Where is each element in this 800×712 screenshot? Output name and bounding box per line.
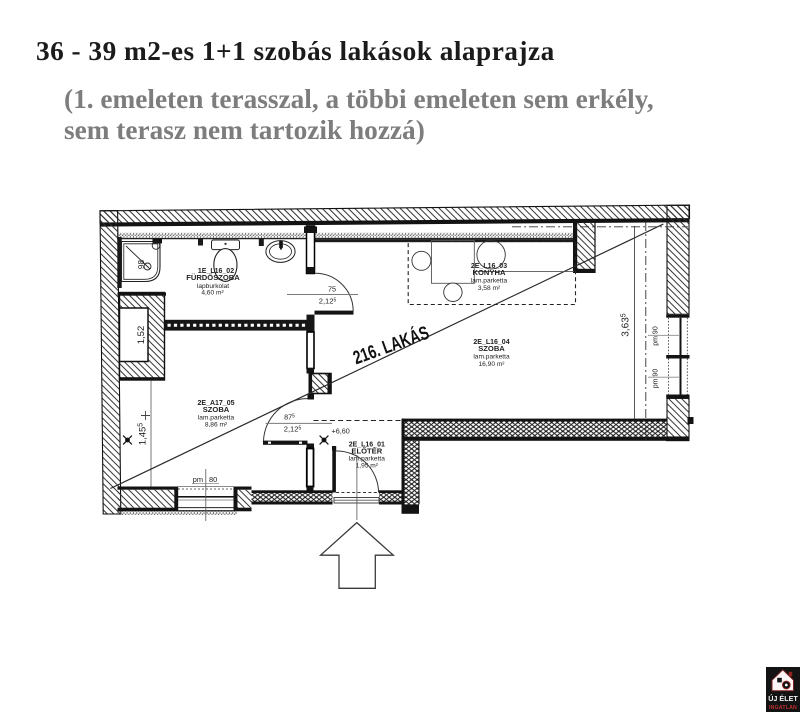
svg-text:+6,60: +6,60 — [332, 427, 350, 436]
svg-text:lam.parketta: lam.parketta — [349, 456, 386, 463]
svg-text:SZOBA: SZOBA — [478, 344, 505, 353]
svg-text:875: 875 — [284, 413, 295, 422]
svg-text:pm 90: pm 90 — [653, 326, 660, 346]
svg-text:pm: pm — [193, 475, 203, 484]
svg-text:SZOBA: SZOBA — [203, 405, 230, 414]
svg-text:8,86 m²: 8,86 m² — [205, 422, 228, 429]
svg-text:pm 90: pm 90 — [653, 369, 660, 389]
svg-text:80: 80 — [209, 475, 217, 484]
svg-text:FÜRDŐSZOBA: FÜRDŐSZOBA — [186, 273, 240, 282]
svg-text:3,635: 3,635 — [621, 313, 632, 336]
svg-text:lam.parketta: lam.parketta — [471, 278, 508, 285]
svg-text:75: 75 — [328, 285, 336, 294]
svg-text:lam.parketta: lam.parketta — [473, 354, 510, 361]
svg-text:2,125: 2,125 — [284, 425, 302, 434]
svg-text:INGATLAN: INGATLAN — [769, 705, 797, 711]
svg-text:216. LAKÁS: 216. LAKÁS — [350, 322, 432, 369]
svg-text:2,125: 2,125 — [319, 297, 337, 306]
svg-text:98: 98 — [137, 260, 146, 270]
svg-text:16,90 m²: 16,90 m² — [478, 361, 505, 368]
svg-text:4,60 m²: 4,60 m² — [201, 289, 224, 296]
svg-text:KONYHA: KONYHA — [473, 268, 506, 277]
svg-text:1,455: 1,455 — [138, 423, 149, 446]
svg-text:ELŐTÉR: ELŐTÉR — [351, 447, 382, 456]
svg-text:ÚJ ÉLET: ÚJ ÉLET — [768, 694, 798, 703]
svg-text:1,52: 1,52 — [136, 326, 147, 345]
svg-text:lam.parketta: lam.parketta — [198, 415, 235, 422]
svg-text:3,58 m²: 3,58 m² — [478, 285, 501, 292]
